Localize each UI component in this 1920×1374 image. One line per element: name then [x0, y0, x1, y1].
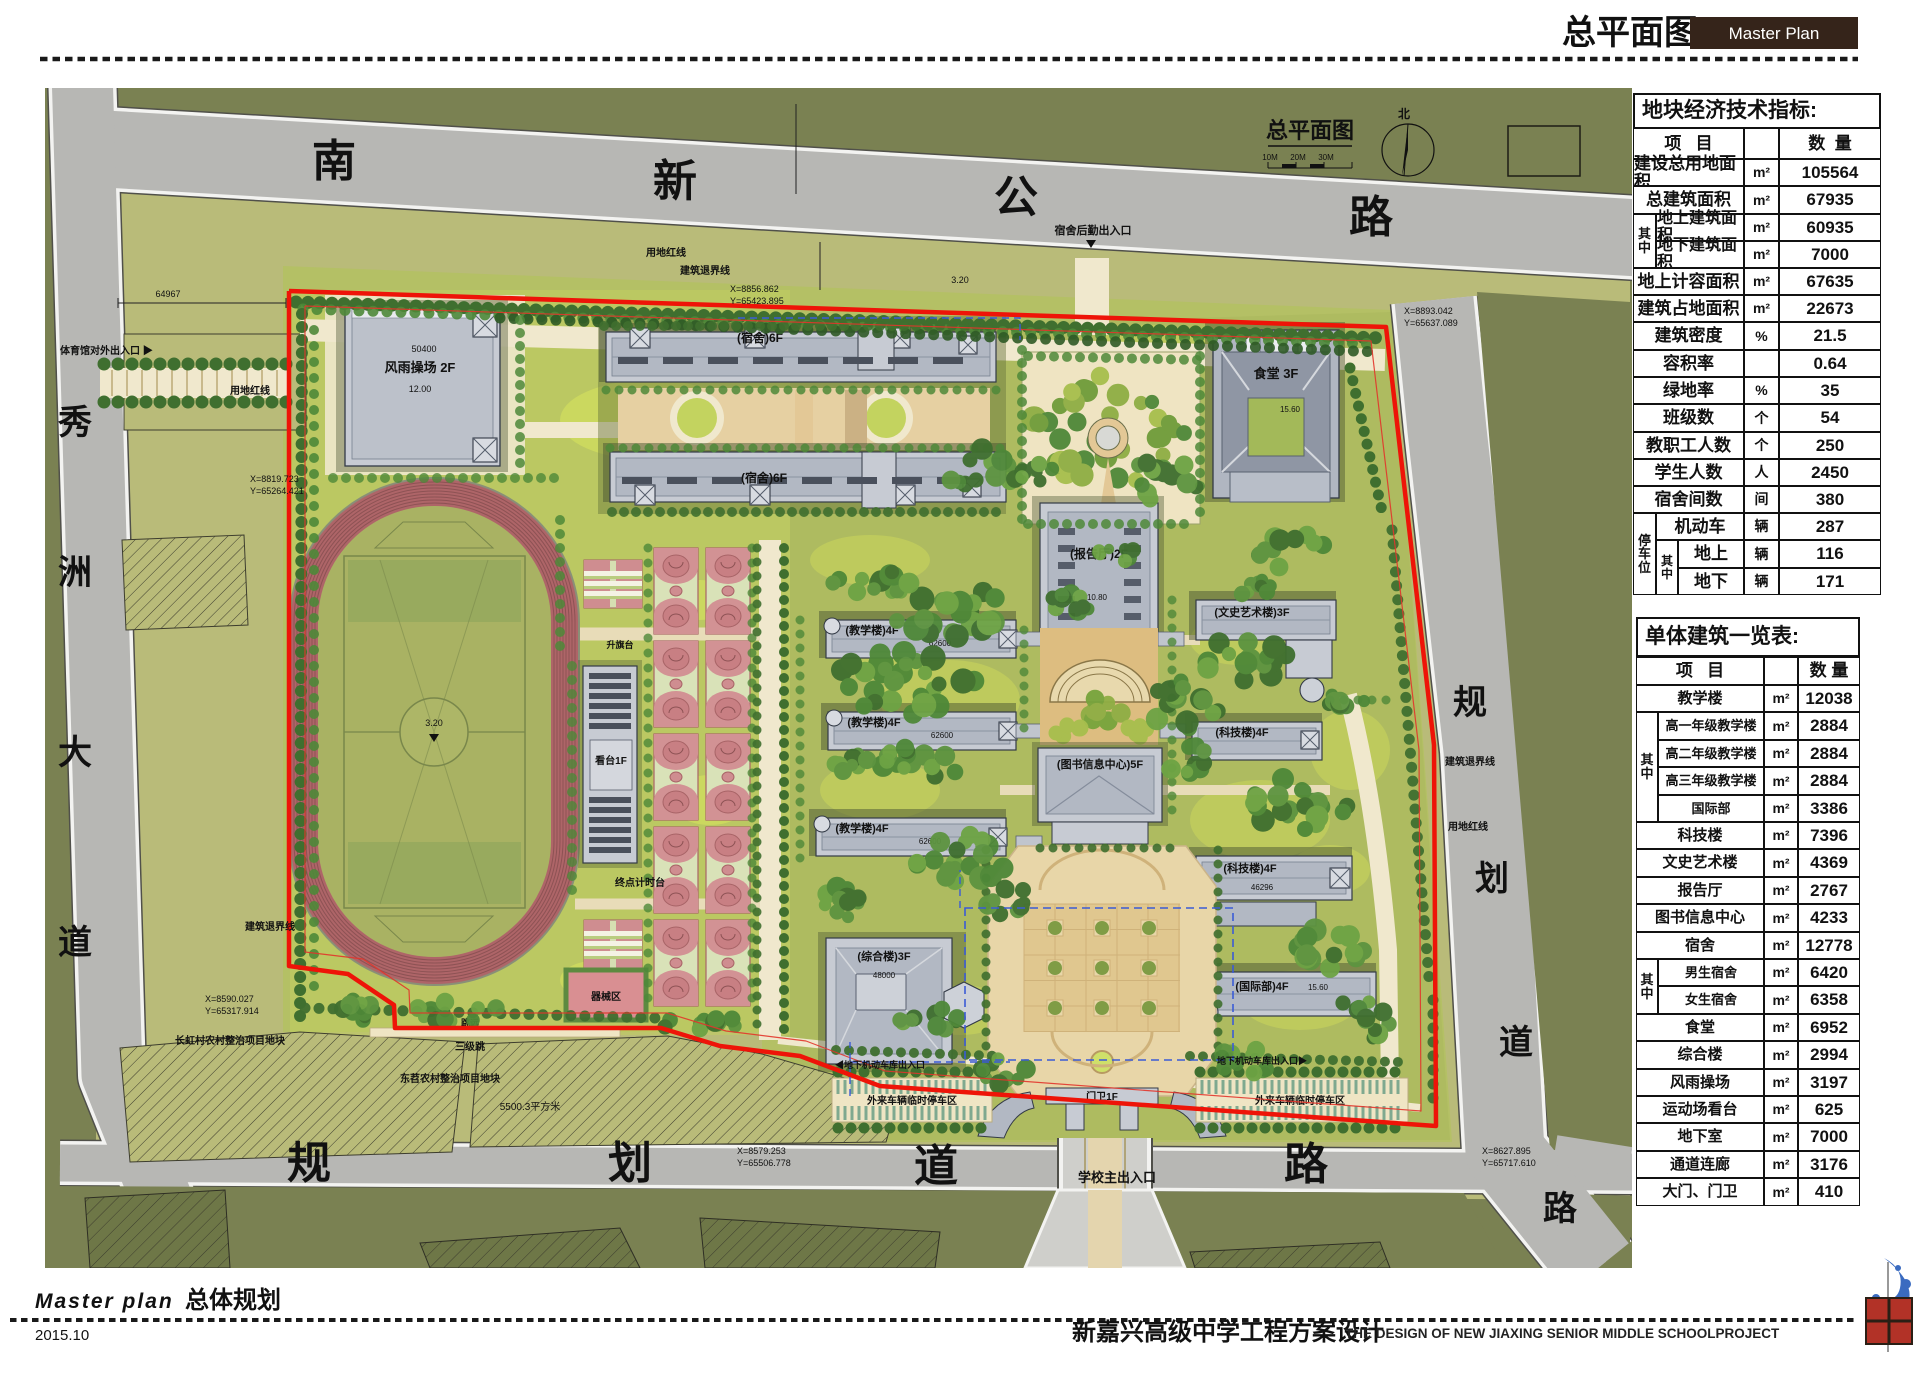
- svg-text:Master plan: Master plan: [35, 1290, 174, 1313]
- svg-text:(宿舍)6F: (宿舍)6F: [741, 470, 787, 485]
- svg-text:用地红线: 用地红线: [1447, 820, 1488, 833]
- svg-text:(综合楼)3F: (综合楼)3F: [857, 949, 910, 963]
- svg-text:62600: 62600: [931, 731, 954, 740]
- svg-text:北: 北: [1398, 106, 1410, 121]
- svg-text:南: 南: [312, 137, 356, 186]
- svg-text:宿舍后勤出入口: 宿舍后勤出入口: [1055, 223, 1132, 237]
- svg-text:30M: 30M: [1318, 153, 1334, 162]
- svg-text:划: 划: [1475, 860, 1509, 898]
- svg-text:规: 规: [1453, 684, 1487, 722]
- svg-text:东苕农村整治项目地块: 东苕农村整治项目地块: [400, 1072, 501, 1085]
- svg-text:新: 新: [653, 157, 697, 206]
- svg-text:46296: 46296: [1251, 883, 1274, 892]
- svg-text:规: 规: [287, 1139, 331, 1188]
- svg-text:升旗台: 升旗台: [606, 639, 633, 650]
- svg-text:X=8893.042: X=8893.042: [1404, 306, 1453, 316]
- svg-text:地下机动车库出入口▶: 地下机动车库出入口▶: [1217, 1055, 1307, 1066]
- svg-text:X=8590.027: X=8590.027: [205, 994, 254, 1004]
- svg-text:洲: 洲: [58, 554, 92, 592]
- svg-text:总平面图: 总平面图: [1266, 118, 1354, 143]
- svg-text:路: 路: [1543, 1190, 1578, 1228]
- svg-text:体育馆对外出入口 ▶: 体育馆对外出入口 ▶: [60, 344, 153, 357]
- svg-text:◀地下机动车库出入口: ◀地下机动车库出入口: [835, 1059, 925, 1070]
- svg-text:食堂 3F: 食堂 3F: [1254, 366, 1299, 381]
- svg-text:建筑退界线: 建筑退界线: [244, 920, 295, 933]
- svg-text:终点计时台: 终点计时台: [615, 876, 665, 889]
- svg-text:总体规划: 总体规划: [185, 1286, 281, 1314]
- svg-text:3.20: 3.20: [425, 718, 443, 728]
- svg-text:Y=65637.089: Y=65637.089: [1404, 318, 1458, 328]
- svg-text:10.80: 10.80: [1087, 593, 1108, 602]
- svg-text:道: 道: [1499, 1024, 1533, 1062]
- svg-text:三级跳: 三级跳: [455, 1040, 485, 1053]
- svg-text:Y=65317.914: Y=65317.914: [205, 1006, 259, 1016]
- svg-text:64967: 64967: [155, 289, 180, 299]
- svg-text:用地红线: 用地红线: [645, 246, 686, 259]
- svg-text:50400: 50400: [411, 344, 436, 354]
- svg-text:总平面图: 总平面图: [1562, 14, 1698, 52]
- svg-text:长虹村农村整治项目地块: 长虹村农村整治项目地块: [175, 1034, 286, 1047]
- svg-text:Y=65506.778: Y=65506.778: [737, 1158, 791, 1168]
- svg-text:X=8627.895: X=8627.895: [1482, 1146, 1531, 1156]
- svg-text:Y=65423.895: Y=65423.895: [730, 296, 784, 306]
- svg-text:(教学楼)4F: (教学楼)4F: [847, 715, 900, 729]
- svg-text:X=8579.253: X=8579.253: [737, 1146, 786, 1156]
- svg-text:(文史艺术楼)3F: (文史艺术楼)3F: [1214, 605, 1289, 619]
- svg-text:(国际部)4F: (国际部)4F: [1235, 979, 1288, 993]
- svg-text:12.00: 12.00: [409, 384, 432, 394]
- svg-text:器械区: 器械区: [590, 990, 621, 1003]
- svg-text:建筑退界线: 建筑退界线: [679, 264, 730, 277]
- svg-text:道: 道: [914, 1142, 958, 1191]
- svg-text:路: 路: [1349, 193, 1394, 242]
- svg-text:公: 公: [994, 173, 1038, 222]
- svg-text:划: 划: [608, 1139, 652, 1188]
- svg-text:看台1F: 看台1F: [595, 754, 627, 767]
- svg-text:Y=65717.610: Y=65717.610: [1482, 1158, 1536, 1168]
- svg-text:大: 大: [58, 734, 92, 772]
- svg-text:秀: 秀: [57, 404, 92, 442]
- svg-text:15.60: 15.60: [1308, 983, 1329, 992]
- svg-text:Master Plan: Master Plan: [1729, 24, 1820, 43]
- svg-text:(科技楼)4F: (科技楼)4F: [1223, 861, 1276, 875]
- svg-text:外来车辆临时停车区: 外来车辆临时停车区: [866, 1094, 957, 1107]
- svg-text:路: 路: [1284, 1140, 1329, 1189]
- svg-text:(图书信息中心)5F: (图书信息中心)5F: [1057, 757, 1143, 771]
- svg-text:Y=65264.421: Y=65264.421: [250, 486, 304, 496]
- svg-text:48000: 48000: [873, 971, 896, 980]
- svg-text:道: 道: [58, 924, 92, 962]
- svg-text:风雨操场 2F: 风雨操场 2F: [385, 360, 456, 375]
- svg-text:外来车辆临时停车区: 外来车辆临时停车区: [1254, 1094, 1345, 1107]
- svg-text:3.20: 3.20: [951, 275, 969, 285]
- svg-text:15.60: 15.60: [1280, 405, 1301, 414]
- svg-text:新嘉兴高级中学工程方案设计: 新嘉兴高级中学工程方案设计: [1072, 1318, 1384, 1346]
- svg-text:5500.3平方米: 5500.3平方米: [500, 1100, 561, 1113]
- svg-text:X=8819.723: X=8819.723: [250, 474, 299, 484]
- svg-text:(教学楼)4F: (教学楼)4F: [835, 821, 888, 835]
- svg-text:THE DESIGN OF NEW JIAXING SENI: THE DESIGN OF NEW JIAXING SENIOR MIDDLE …: [1345, 1326, 1780, 1341]
- svg-text:10M: 10M: [1262, 153, 1278, 162]
- svg-text:学校主出入口: 学校主出入口: [1078, 1170, 1156, 1185]
- svg-text:X=8856.862: X=8856.862: [730, 284, 779, 294]
- svg-text:2015.10: 2015.10: [35, 1327, 89, 1344]
- svg-text:(科技楼)4F: (科技楼)4F: [1215, 725, 1268, 739]
- svg-text:用地红线: 用地红线: [229, 384, 270, 397]
- svg-text:20M: 20M: [1290, 153, 1306, 162]
- svg-text:建筑退界线: 建筑退界线: [1444, 755, 1495, 768]
